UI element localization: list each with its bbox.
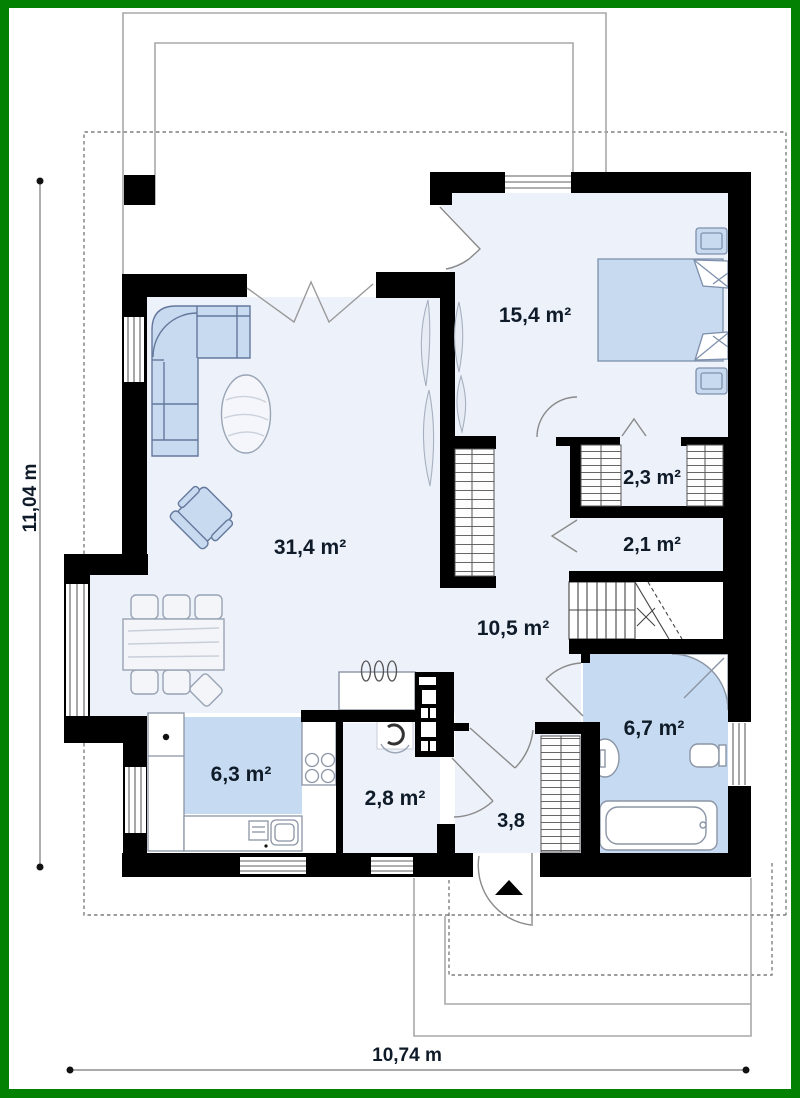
svg-text:6,7 m²: 6,7 m² [624, 717, 685, 740]
svg-text:15,4 m²: 15,4 m² [499, 304, 571, 327]
svg-text:31,4 m²: 31,4 m² [274, 536, 346, 559]
svg-text:2,3 m²: 2,3 m² [623, 467, 681, 489]
svg-text:11,04 m: 11,04 m [20, 464, 41, 533]
svg-text:3,8: 3,8 [497, 810, 525, 832]
svg-text:6,3 m²: 6,3 m² [211, 763, 272, 786]
svg-text:10,5 m²: 10,5 m² [477, 617, 549, 640]
svg-text:2,8 m²: 2,8 m² [365, 787, 426, 810]
svg-text:10,74 m: 10,74 m [372, 1045, 442, 1066]
svg-text:2,1 m²: 2,1 m² [623, 534, 681, 556]
